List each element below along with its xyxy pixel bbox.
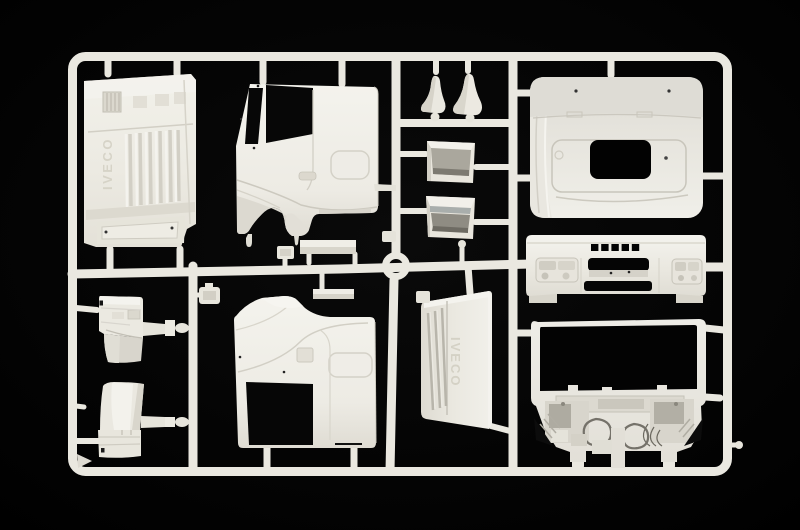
svg-text:IVECO: IVECO <box>448 337 463 387</box>
svg-text:IVECO: IVECO <box>100 137 115 190</box>
